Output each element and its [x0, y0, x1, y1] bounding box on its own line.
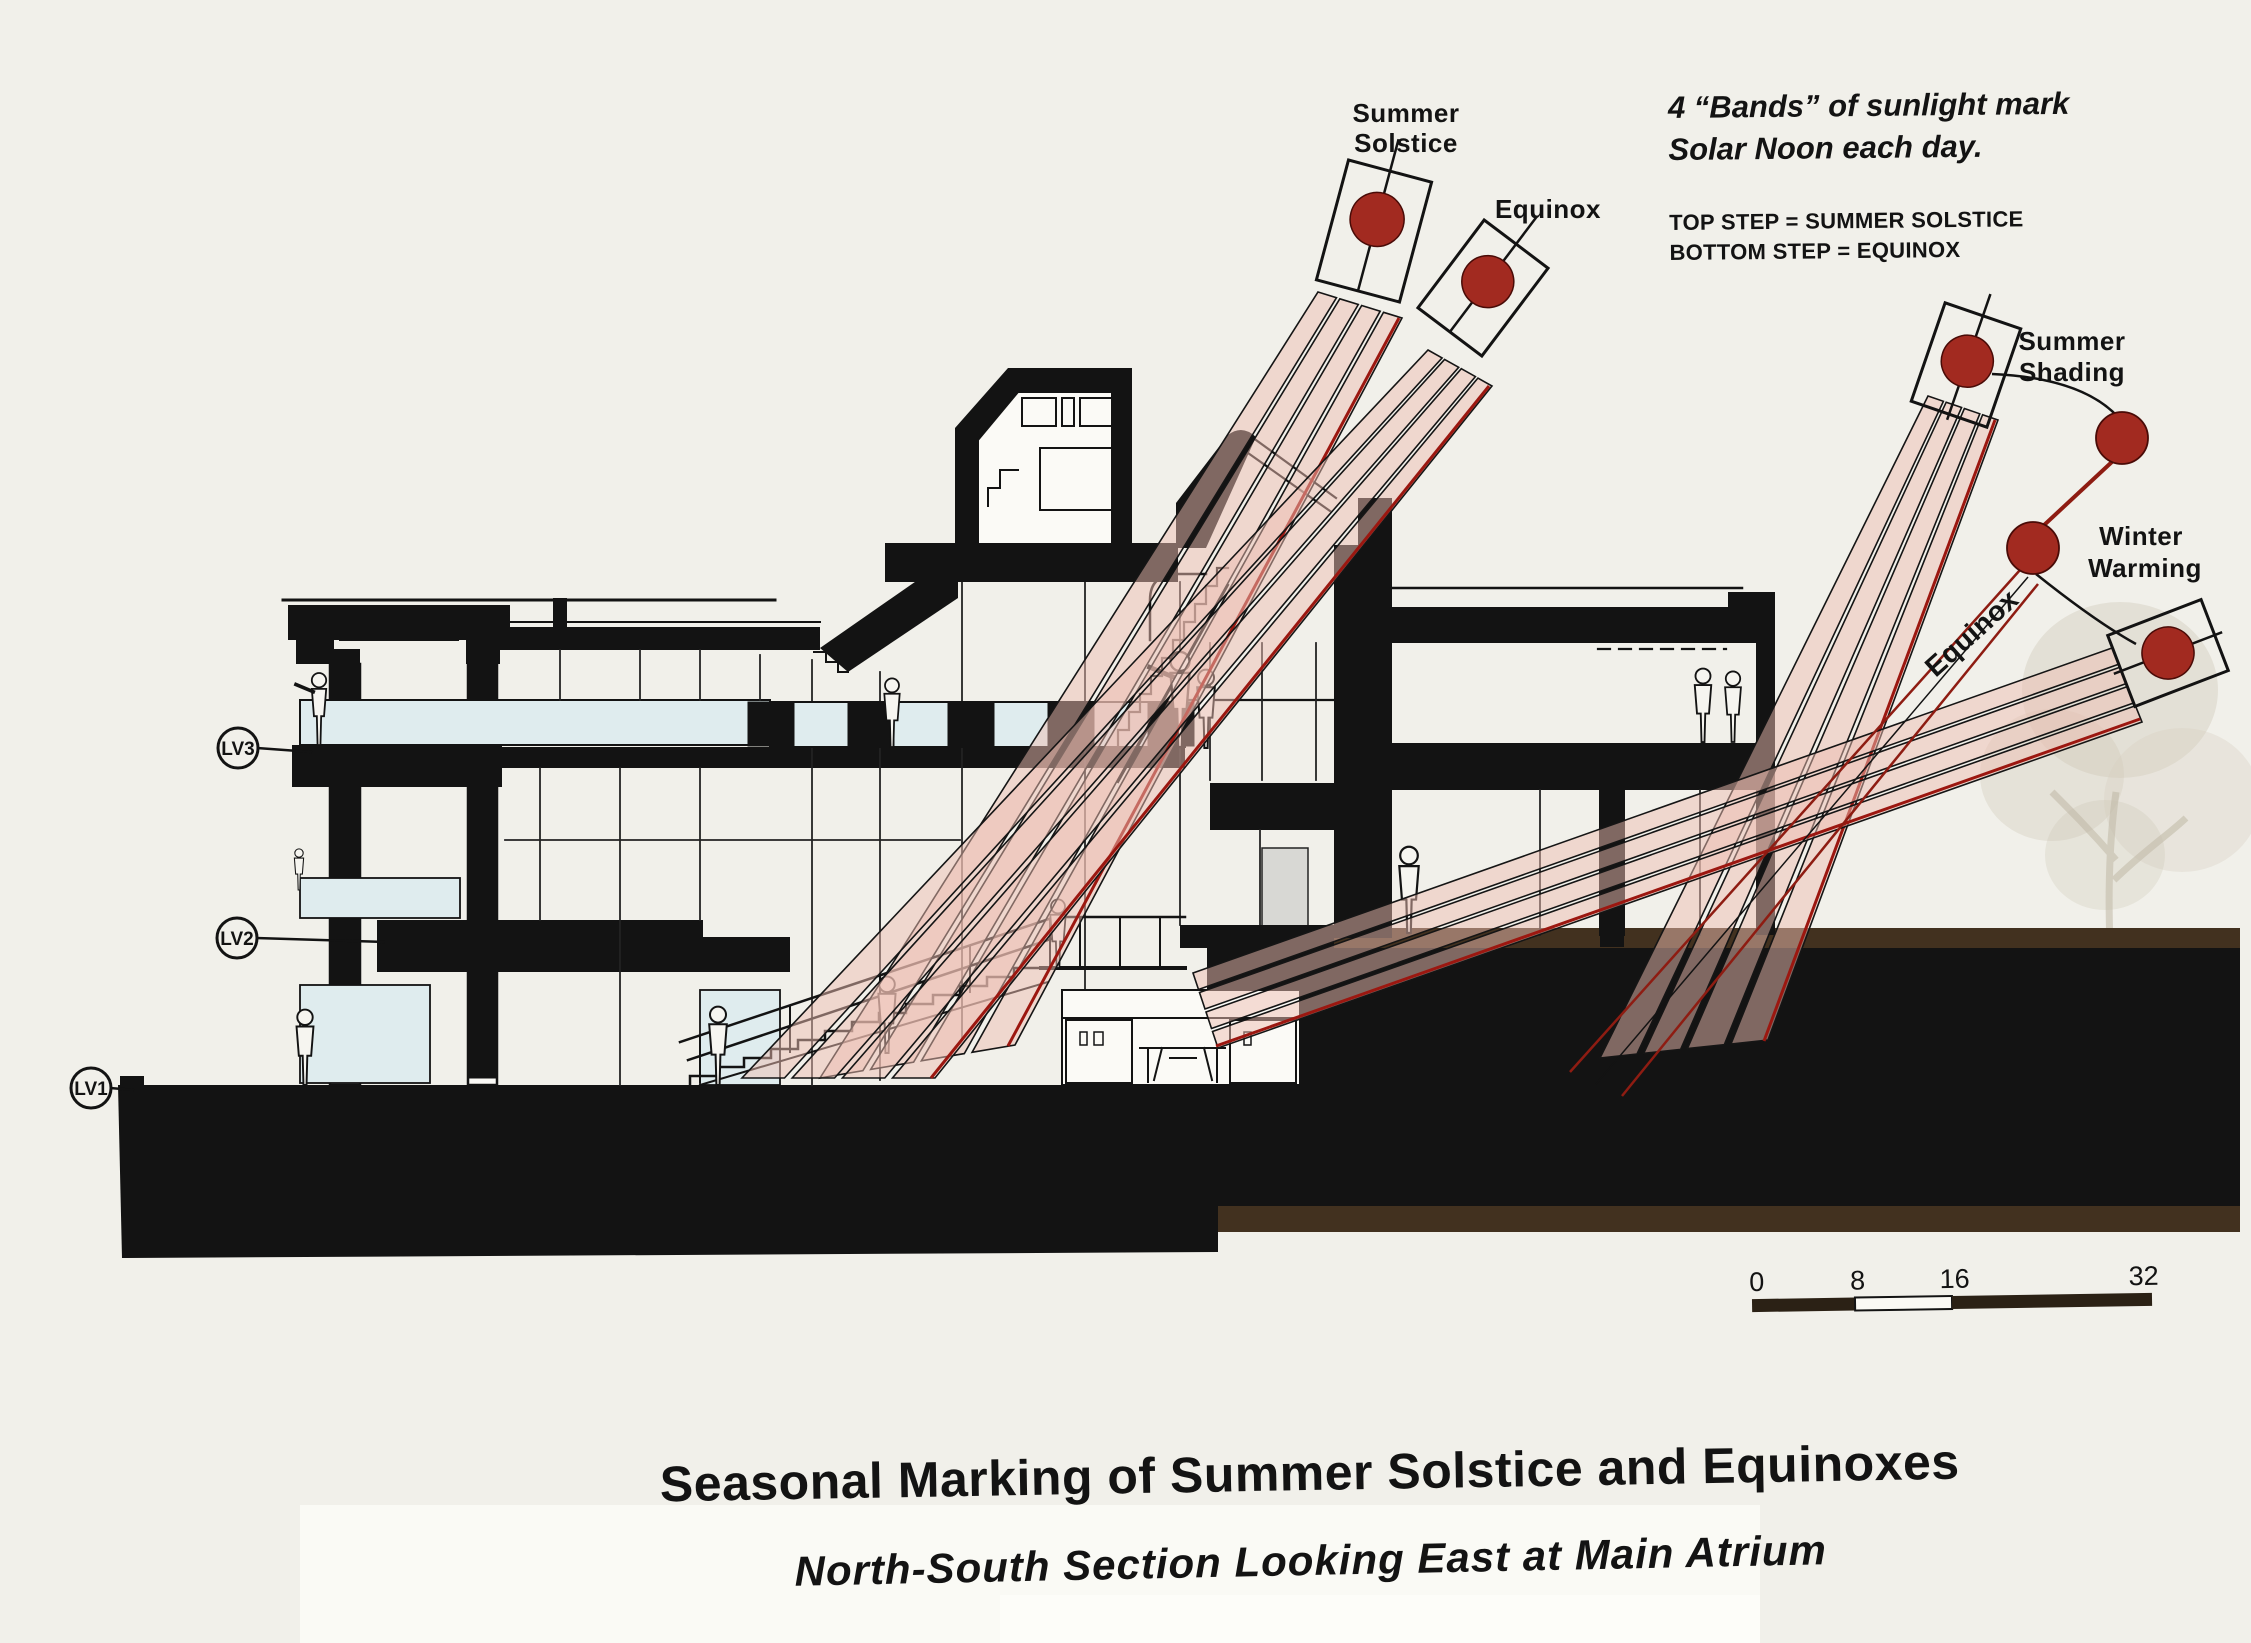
level-marker-lv3: LV3	[221, 739, 254, 760]
note-key-line1: TOP STEP = SUMMER SOLSTICE	[1669, 206, 2024, 235]
scan-light-band-2	[1000, 1595, 1760, 1643]
architectural-diagram-page: Summer Solstice Equinox Summer Shading W…	[0, 0, 2251, 1643]
label-summer-shading-line2: Shading	[2019, 357, 2125, 387]
scale-tick-16: 16	[1939, 1264, 1970, 1294]
label-winter-warming-line2: Warming	[2088, 553, 2202, 583]
level-marker-lv1: LV1	[74, 1079, 108, 1100]
label-equinox-top: Equinox	[1495, 194, 1601, 224]
note-key-line2: BOTTOM STEP = EQUINOX	[1669, 237, 1960, 265]
note-headline-line1: 4 “Bands” of sunlight mark	[1667, 86, 2071, 125]
label-winter-warming-line1: Winter	[2099, 521, 2183, 551]
level-marker-lv2: LV2	[220, 929, 253, 950]
label-summer-shading-line1: Summer	[2018, 326, 2125, 356]
sun-disc-midpath-lower	[2007, 522, 2059, 574]
scale-tick-0: 0	[1749, 1267, 1765, 1297]
scale-tick-32: 32	[2128, 1261, 2159, 1291]
section-drawing: Summer Solstice Equinox Summer Shading W…	[0, 0, 2251, 1643]
atrium-east-wall	[1334, 545, 1392, 938]
note-headline-line2: Solar Noon each day.	[1668, 129, 1982, 167]
ground-slab-left	[118, 1076, 1218, 1258]
label-summer-solstice-line1: Summer	[1352, 98, 1459, 128]
label-summer-solstice-line2: Solstice	[1354, 128, 1458, 158]
sun-disc-midpath-upper	[2096, 412, 2148, 464]
scale-tick-8: 8	[1850, 1265, 1866, 1295]
